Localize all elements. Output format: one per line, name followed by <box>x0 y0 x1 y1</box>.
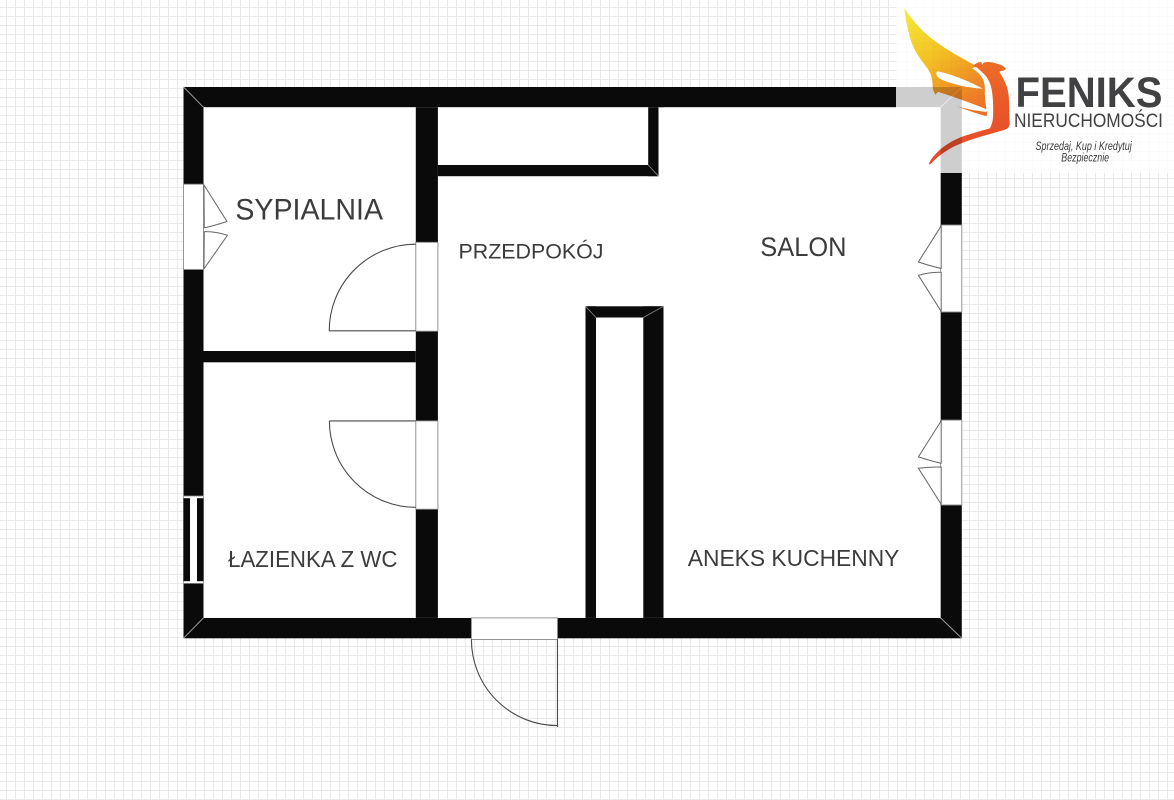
svg-text:Bezpiecznie: Bezpiecznie <box>1061 151 1109 165</box>
svg-text:PRZEDPOKÓJ: PRZEDPOKÓJ <box>459 238 604 263</box>
svg-text:ANEKS KUCHENNY: ANEKS KUCHENNY <box>688 545 900 571</box>
svg-text:SALON: SALON <box>760 232 846 262</box>
svg-text:ŁAZIENKA Z WC: ŁAZIENKA Z WC <box>228 546 397 572</box>
svg-text:FENIKS: FENIKS <box>1016 69 1163 117</box>
svg-text:NIERUCHOMOŚCI: NIERUCHOMOŚCI <box>1014 110 1163 132</box>
svg-text:SYPIALNIA: SYPIALNIA <box>235 193 383 226</box>
